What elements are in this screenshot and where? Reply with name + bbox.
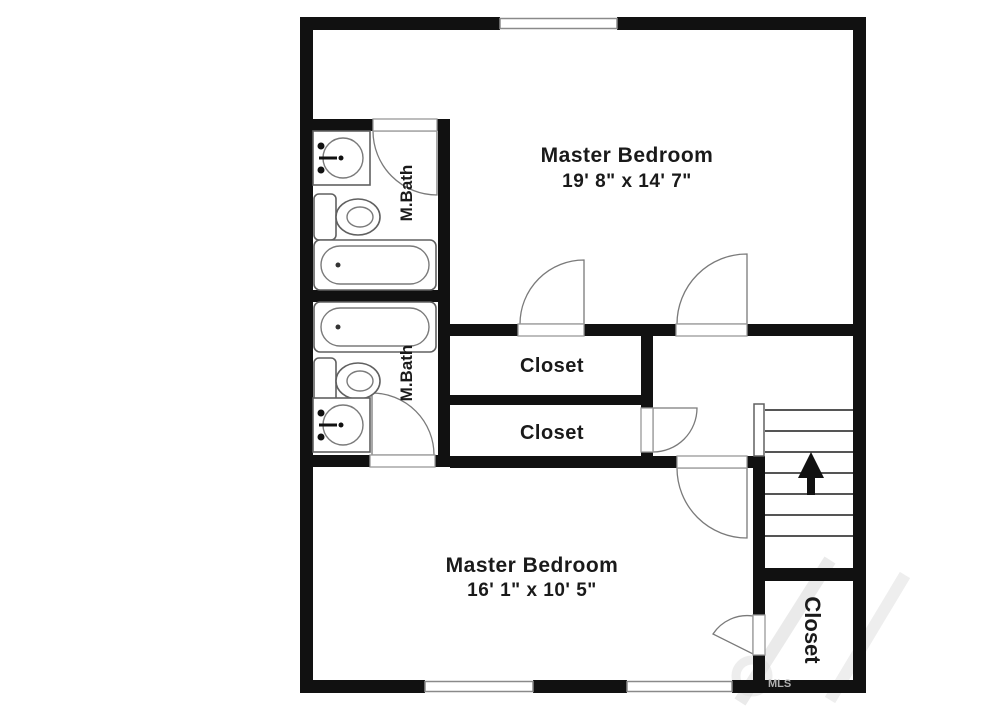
wall-segment (313, 119, 373, 131)
room-label-master-bottom: Master Bedroom (446, 554, 619, 577)
door-leaf (677, 456, 747, 468)
sink-icon (313, 398, 370, 452)
window (627, 682, 732, 692)
room-label-closet-bottom-right: Closet (800, 596, 825, 664)
door-leaf (373, 119, 437, 131)
sink-icon (313, 131, 370, 185)
wall-segment (641, 336, 653, 408)
wall-segment (617, 17, 866, 30)
wall-segment (853, 17, 866, 693)
door-leaf (676, 324, 747, 336)
wall-segment (435, 455, 450, 467)
wall-segment (753, 655, 765, 682)
window (500, 19, 617, 29)
wall-segment (313, 455, 370, 467)
watermark-mls-text: MLS (768, 678, 791, 690)
wall-segment (747, 324, 854, 336)
door-leaf (370, 455, 435, 467)
wall-segment (450, 456, 677, 468)
floor-plan-svg: Master Bedroom 19' 8" x 14' 7" Master Be… (0, 0, 1000, 706)
room-dims-master-top: 19' 8" x 14' 7" (562, 171, 692, 192)
room-label-closet-upper: Closet (520, 355, 584, 377)
room-label-mbath-top: M.Bath (397, 165, 416, 222)
wall-segment (753, 568, 866, 581)
wall-segment (732, 680, 866, 693)
wall-segment (313, 290, 438, 302)
room-label-master-top: Master Bedroom (541, 144, 714, 167)
wall-segment (450, 395, 653, 405)
wall-segment (533, 680, 627, 693)
wall-segment (753, 456, 765, 615)
door-leaf (641, 408, 653, 452)
wall-segment (438, 119, 450, 467)
bathtub-icon (314, 240, 436, 290)
room-dims-master-bottom: 16' 1" x 10' 5" (467, 580, 597, 601)
stair-railing (754, 404, 764, 456)
door-leaf (753, 615, 765, 655)
floor-plan-canvas: Master Bedroom 19' 8" x 14' 7" Master Be… (0, 0, 1000, 706)
wall-segment (300, 680, 425, 693)
wall-segment (584, 324, 676, 336)
wall-segment (450, 324, 518, 336)
bathtub-icon (314, 302, 436, 352)
wall-segment (300, 17, 313, 693)
room-label-mbath-bottom: M.Bath (397, 345, 416, 402)
window (425, 682, 533, 692)
room-label-closet-lower: Closet (520, 422, 584, 444)
door-leaf (518, 324, 584, 336)
wall-segment (300, 17, 500, 30)
